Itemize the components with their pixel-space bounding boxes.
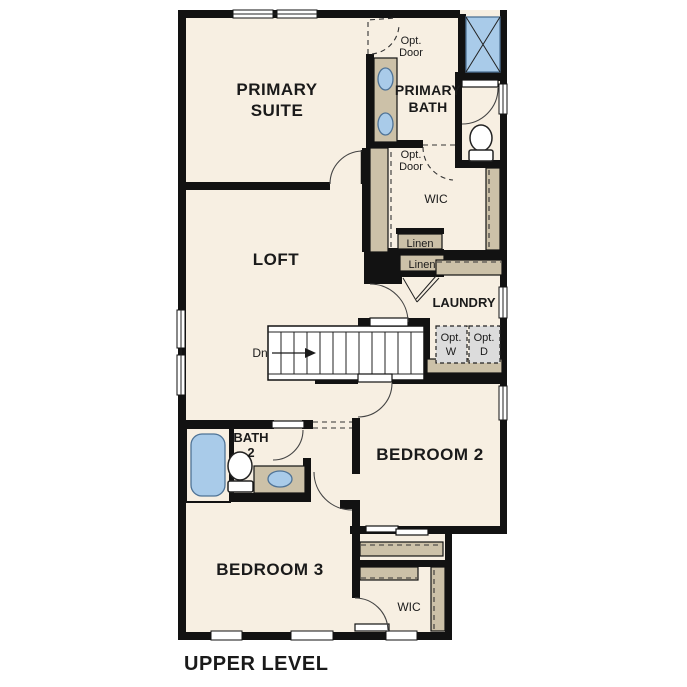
primary-suite-label: SUITE bbox=[251, 101, 304, 120]
loft-label: LOFT bbox=[253, 250, 299, 269]
opt-dryer-label: D bbox=[480, 346, 488, 358]
opt-door-wic-label: Opt. bbox=[401, 149, 422, 161]
opt-dryer-label: Opt. bbox=[474, 332, 495, 344]
opt-washer-label: W bbox=[446, 346, 457, 358]
laundry-label: LAUNDRY bbox=[432, 295, 495, 310]
floor-plan-drawing: PRIMARY SUITE PRIMARY BATH Opt. Door Opt… bbox=[0, 0, 687, 687]
stairs bbox=[268, 326, 424, 380]
primary-bath-label: BATH bbox=[408, 99, 447, 115]
primary-vanity-icon bbox=[374, 58, 397, 142]
window bbox=[386, 631, 417, 640]
bedroom2-closet-door bbox=[396, 529, 428, 535]
bath2-label: BATH bbox=[233, 430, 268, 445]
toilet-room-door-leaf bbox=[462, 80, 498, 87]
linen-upper-label: Linen bbox=[407, 238, 434, 250]
bedroom2-closet-door bbox=[366, 526, 398, 532]
opt-door-top-label: Door bbox=[399, 47, 423, 59]
wic-lower-door-leaf bbox=[355, 624, 389, 631]
page-title: UPPER LEVEL bbox=[184, 653, 328, 675]
primary-bath-label: PRIMARY bbox=[395, 82, 462, 98]
opt-door-wic-label: Door bbox=[399, 161, 423, 173]
primary-toilet-icon bbox=[469, 125, 493, 161]
shower-icon bbox=[466, 17, 500, 72]
bath2-door-leaf bbox=[272, 421, 304, 428]
primary-suite-label: PRIMARY bbox=[236, 80, 317, 99]
linen-lower-label: Linen bbox=[409, 259, 436, 271]
wic-lower-label: WIC bbox=[397, 600, 421, 614]
bedroom2-label: BEDROOM 2 bbox=[376, 445, 483, 464]
floor-plan-page: PRIMARY SUITE PRIMARY BATH Opt. Door Opt… bbox=[0, 0, 687, 687]
bedroom2-door-leaf bbox=[358, 374, 392, 382]
opt-washer-label: Opt. bbox=[441, 332, 462, 344]
hall-door-leaf bbox=[370, 318, 408, 326]
wic-upper-label: WIC bbox=[424, 192, 448, 206]
opt-door-top-label: Opt. bbox=[401, 35, 422, 47]
stairs-down-label: Dn bbox=[252, 346, 267, 360]
bedroom3-label: BEDROOM 3 bbox=[216, 560, 323, 579]
bath2-label: 2 bbox=[247, 445, 254, 460]
bathtub-basin bbox=[191, 434, 225, 496]
window bbox=[291, 631, 333, 640]
window bbox=[211, 631, 242, 640]
